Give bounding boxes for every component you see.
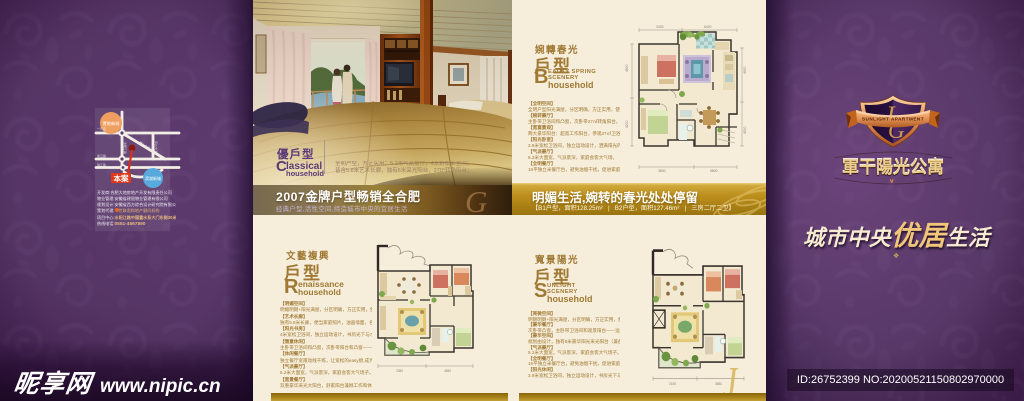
svg-text:5800: 5800 <box>710 169 718 173</box>
svg-text:4300: 4300 <box>743 126 747 134</box>
svg-text:4900: 4900 <box>625 64 629 72</box>
svg-text:4200: 4200 <box>625 120 629 128</box>
svg-text:滨湖新城: 滨湖新城 <box>145 175 161 181</box>
svg-text:水阳江路: 水阳江路 <box>123 142 128 154</box>
svg-text:2150: 2150 <box>669 382 676 386</box>
svg-text:2350: 2350 <box>396 369 403 373</box>
svg-text:本案: 本案 <box>113 173 129 183</box>
svg-text:4550: 4550 <box>444 369 451 373</box>
svg-text:置地新城: 置地新城 <box>103 120 121 127</box>
svg-text:G: G <box>465 185 487 215</box>
svg-text:一环路: 一环路 <box>97 126 106 131</box>
svg-text:珠江路: 珠江路 <box>97 162 106 167</box>
svg-text:3433: 3433 <box>656 25 664 29</box>
svg-text:SUNLIGHT APARTMENT: SUNLIGHT APARTMENT <box>862 117 924 122</box>
svg-text:6400: 6400 <box>704 25 712 29</box>
svg-text:3800: 3800 <box>658 169 666 173</box>
svg-text:庐州大道: 庐州大道 <box>154 141 159 153</box>
svg-text:紫云路: 紫云路 <box>97 153 106 158</box>
svg-text:4900: 4900 <box>743 66 747 74</box>
